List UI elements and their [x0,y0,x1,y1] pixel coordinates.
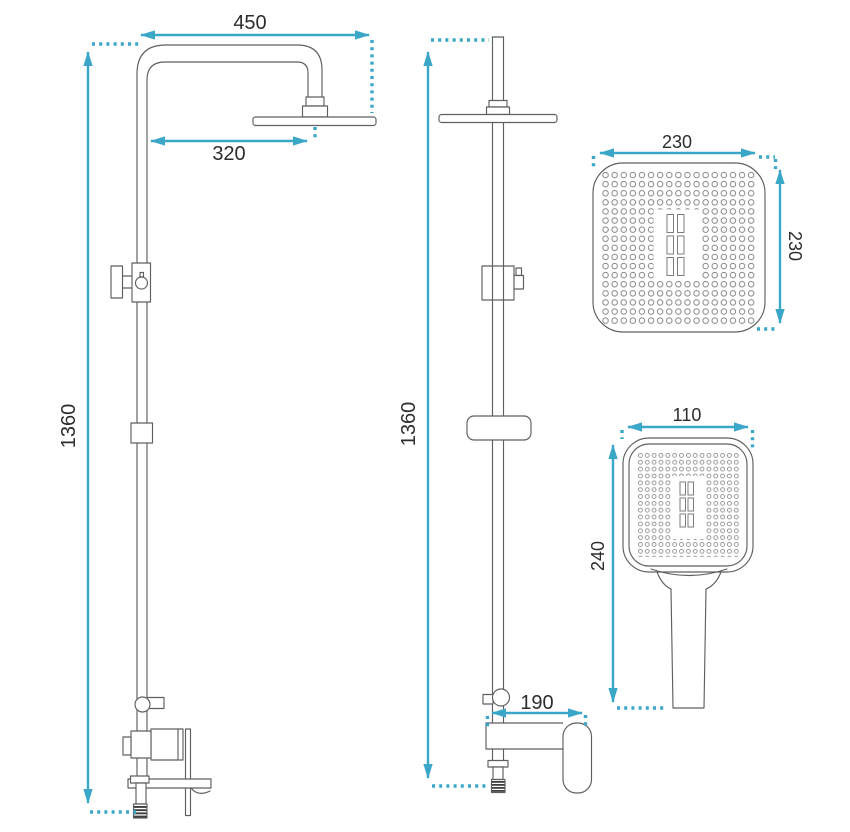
dim-label-450: 450 [233,12,266,34]
mixer-knob [123,737,131,755]
shower-set-diagram: 450 320 1360 [0,0,850,832]
mixer-front [123,729,191,816]
mixer-bracket [186,729,191,816]
dim-230-depth: 230 [757,170,805,329]
shelf-hook [191,788,210,793]
dim-label-320: 320 [212,143,245,165]
dim-320: 320 [151,127,315,165]
head-connector [303,97,328,117]
diverter-side [483,689,510,706]
hand-shower-grip [671,589,706,708]
rail-slider [131,423,153,443]
front-view: 450 320 1360 [58,12,376,818]
head-face-view: 230 230 [593,132,805,332]
riser-pipe-side [493,37,504,760]
rail-holder [111,263,151,302]
spout-body [486,723,563,749]
holder-wheel [111,266,123,298]
dim-110: 110 [622,405,753,448]
mixer-block [131,731,151,758]
dim-label-230-depth: 230 [785,231,805,261]
dim-label-1360-front: 1360 [58,404,80,449]
hand-shower-neck-right [706,572,721,589]
head-plate-side [439,115,557,123]
spout-end [563,723,592,793]
rail-holder-side [482,266,524,300]
diverter-front [135,697,164,712]
hand-shower-neck-left [657,572,671,589]
head-connector-side [487,101,510,115]
dim-label-1360-side: 1360 [398,402,420,447]
hand-shower-view: 110 240 [588,405,753,708]
hose-connector-side [488,761,508,793]
side-view: 1360 190 [398,37,592,793]
dim-label-190: 190 [520,692,553,714]
soap-dish-side [467,416,531,440]
shower-arm-outer [137,45,322,97]
technical-drawing-page: 450 320 1360 [0,0,850,832]
head-plate-edge [253,117,376,126]
dim-label-230-width: 230 [662,132,692,152]
dim-label-240: 240 [588,541,608,571]
dim-label-110: 110 [673,405,702,425]
dim-1360-front: 1360 [58,44,139,812]
hand-shower-handle [651,569,727,708]
shower-arm-inner [147,62,308,97]
dim-1360-side: 1360 [398,40,489,786]
